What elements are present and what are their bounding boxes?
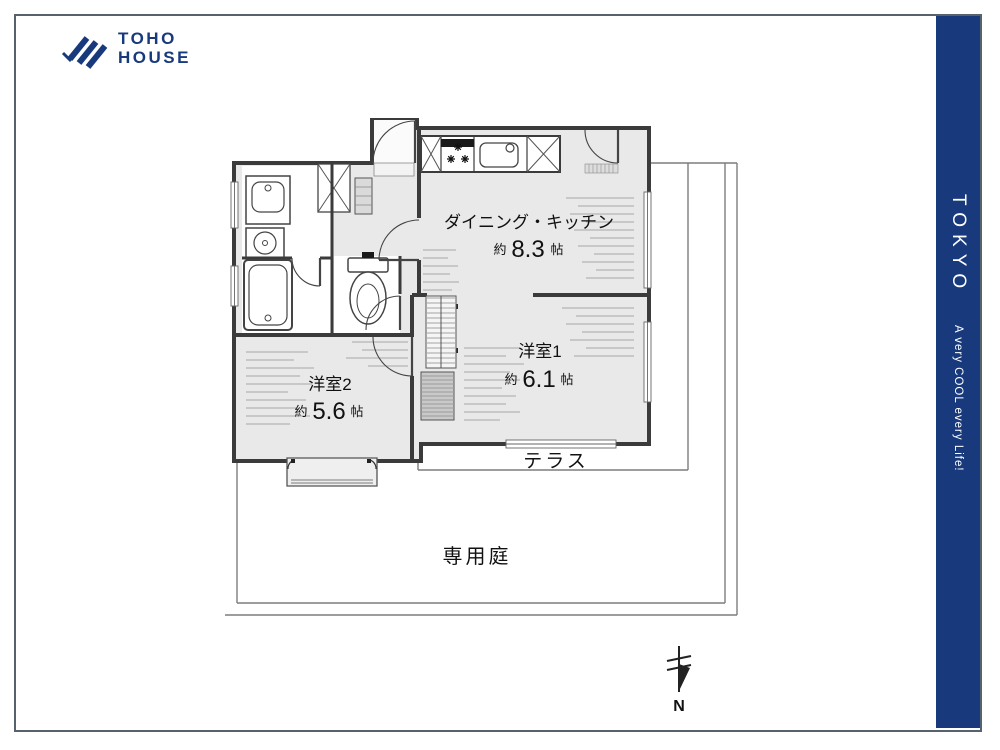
- dk-size-value: 8.3: [511, 236, 544, 263]
- north-label: N: [673, 698, 685, 715]
- north-arrow-icon: [667, 646, 691, 692]
- room2-size-prefix: 約: [294, 404, 307, 419]
- room2-label: 洋室2: [308, 375, 351, 394]
- flyer-page: TOHO HOUSE TOKYO A very COOL every Life!: [0, 0, 1000, 750]
- dk-room-label: ダイニング・キッチン: [444, 213, 614, 232]
- room1-size-prefix: 約: [504, 372, 517, 387]
- washing-machine-pan-icon: [246, 228, 284, 258]
- room1-size-unit: 帖: [560, 372, 573, 387]
- toilet-icon: [348, 252, 388, 324]
- dk-size-unit: 帖: [550, 242, 563, 257]
- shoe-cabinet: [355, 178, 372, 214]
- room1-label: 洋室1: [518, 342, 561, 361]
- dk-size-prefix: 約: [493, 242, 506, 257]
- garden-label: 専用庭: [443, 545, 512, 568]
- kitchen-counter: [421, 136, 560, 172]
- bay-window: [287, 455, 377, 486]
- entrance-step: [374, 163, 414, 176]
- room2-size-unit: 帖: [350, 404, 363, 419]
- room1-size-value: 6.1: [522, 366, 555, 393]
- washbasin-icon: [246, 176, 290, 224]
- room2-size-value: 5.6: [312, 398, 345, 425]
- terrace-label: テラス: [523, 451, 589, 472]
- entrance-closet: [318, 164, 350, 212]
- sliding-door: [426, 296, 456, 368]
- floor-plan: ダイニング・キッチン 約 8.3 帖 洋室1 約 6.1 帖 洋室2 約 5.6…: [0, 0, 1000, 750]
- bathtub-icon: [244, 260, 292, 330]
- closet: [421, 372, 454, 420]
